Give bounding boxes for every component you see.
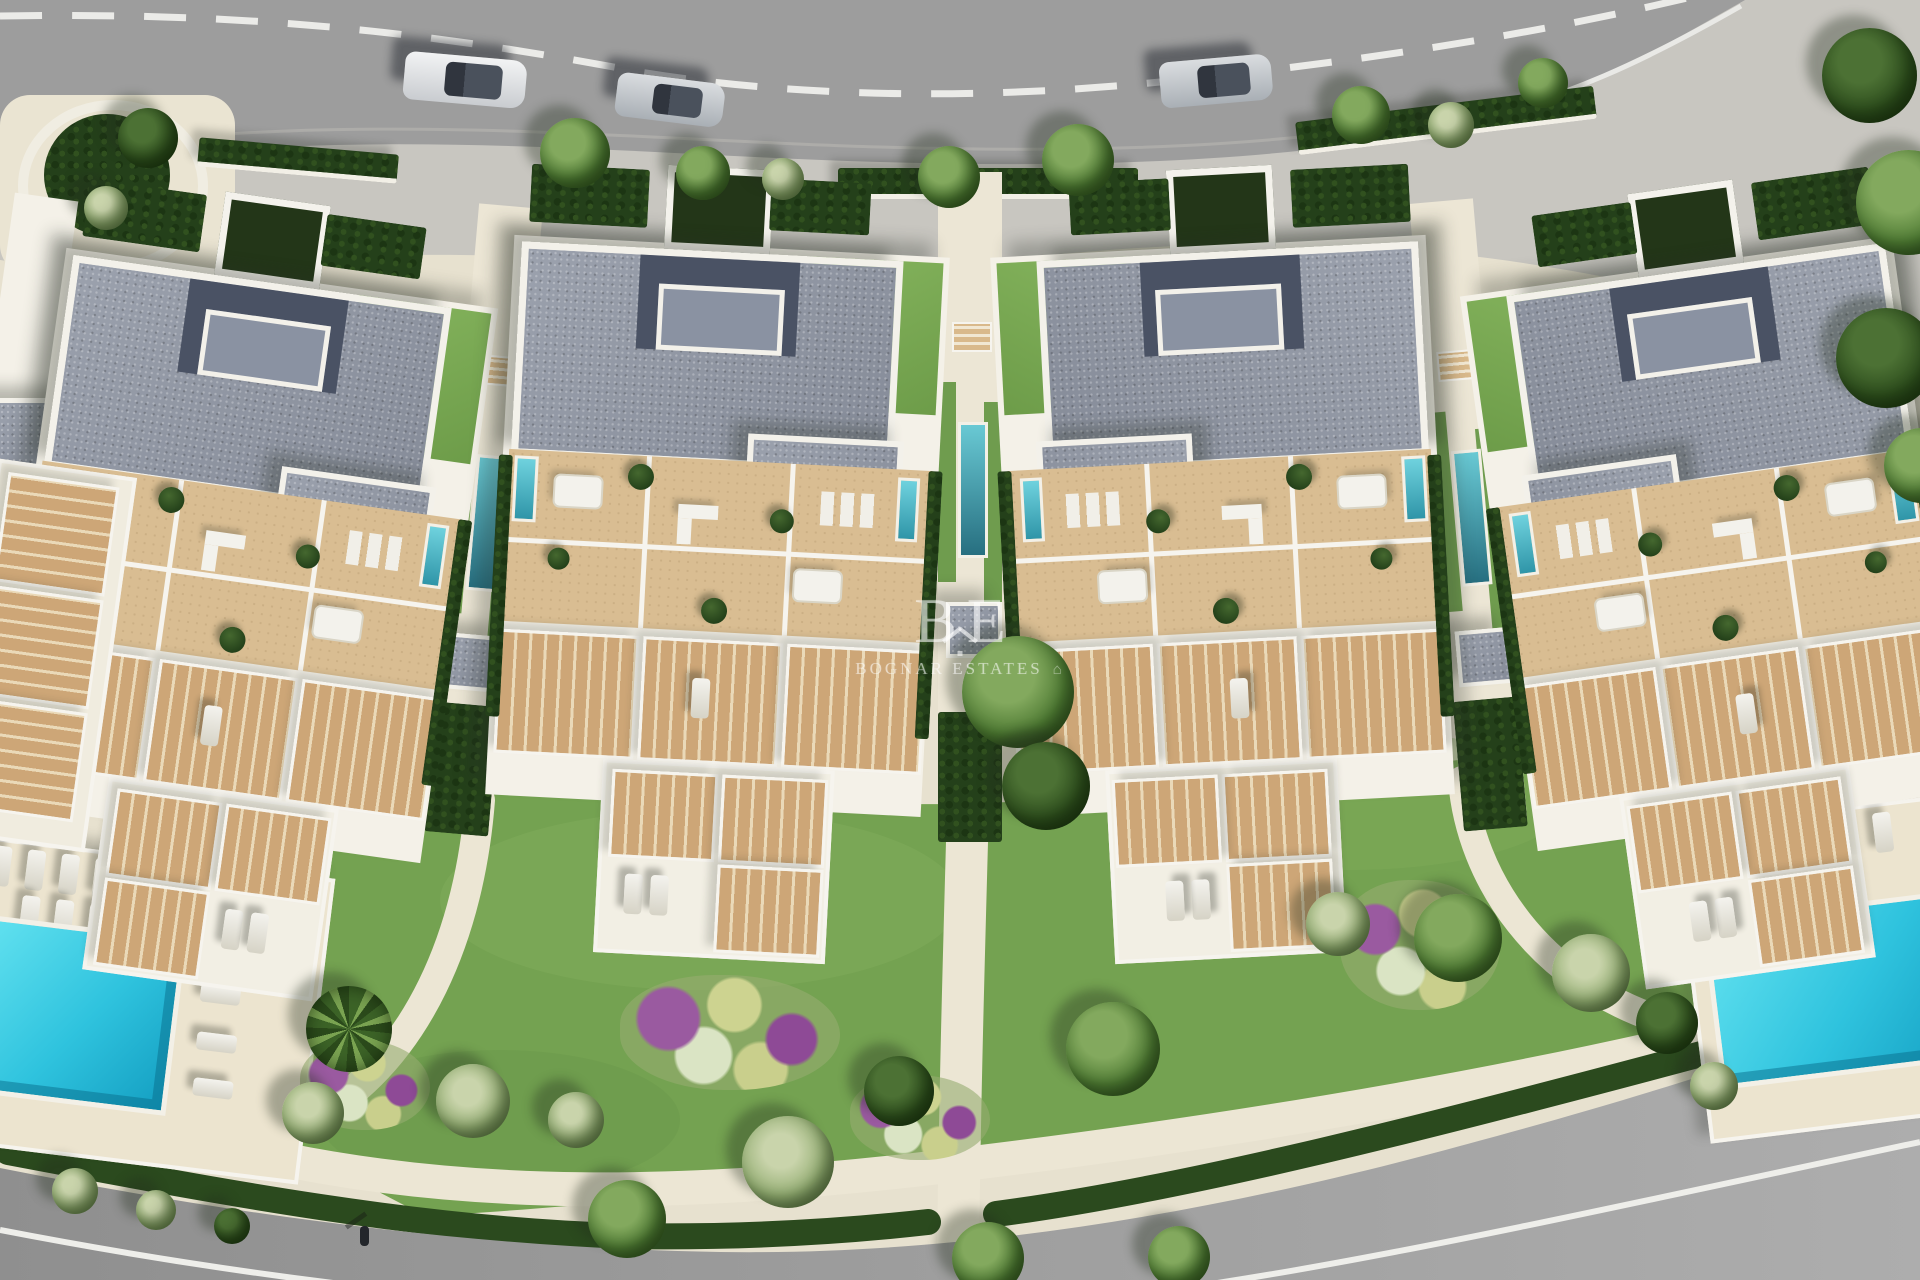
tree	[214, 1208, 250, 1244]
garden-path-central	[958, 806, 968, 1252]
tree	[540, 118, 610, 188]
sun-lounger	[246, 912, 269, 954]
tree	[1428, 102, 1474, 148]
watermark: BE BOGNAR ESTATES⌂	[0, 592, 1920, 679]
tree	[548, 1092, 604, 1148]
deck-panel	[0, 472, 120, 597]
tree	[1822, 28, 1917, 123]
tree	[1690, 1062, 1738, 1110]
tree	[1066, 1002, 1160, 1096]
deck-panel	[214, 804, 331, 906]
sun-lounger	[1191, 879, 1211, 920]
apartment-building-2	[484, 157, 956, 799]
front-pergola	[1166, 165, 1276, 254]
tree	[118, 108, 178, 168]
plunge-pool	[511, 455, 538, 522]
plunge-pool	[1020, 477, 1045, 542]
apartment-building-4	[1447, 158, 1920, 833]
deck-panel	[93, 877, 210, 979]
house-roof-icon	[943, 625, 977, 645]
lower-deck-wing	[82, 777, 339, 1001]
deck-panel	[1222, 769, 1332, 862]
sun-lounger	[1714, 897, 1737, 939]
lower-deck-wing	[1619, 765, 1876, 989]
deck-panel	[1517, 667, 1673, 809]
roof-atrium	[1140, 255, 1305, 357]
dining-set	[1826, 479, 1876, 515]
tree	[676, 146, 730, 200]
dining-set	[554, 475, 602, 507]
tree	[136, 1190, 176, 1230]
roof-atrium	[177, 278, 349, 393]
tree	[1636, 992, 1698, 1054]
deck-panel	[608, 769, 718, 862]
front-hedge	[320, 214, 426, 279]
car-silver	[1158, 53, 1274, 109]
lounge-sofa	[1221, 504, 1262, 520]
lounger-row	[820, 491, 878, 528]
pedestrian	[360, 1226, 369, 1246]
building-body	[1447, 158, 1920, 833]
tree	[588, 1180, 666, 1258]
tree	[742, 1116, 834, 1208]
deck-panel	[0, 698, 88, 823]
lower-deck-wing	[593, 758, 835, 964]
deck-panel	[713, 864, 823, 957]
sun-lounger	[690, 678, 710, 719]
tree	[1306, 892, 1370, 956]
lounge-sofa	[678, 504, 719, 520]
building-body	[0, 170, 511, 845]
front-pergola	[1627, 180, 1744, 278]
brand-monogram: BE	[914, 592, 1006, 651]
front-pergola	[214, 192, 331, 290]
walkway-stairs	[952, 322, 992, 352]
sun-lounger	[1230, 678, 1250, 719]
tree	[52, 1168, 98, 1214]
apartment-building-1	[0, 170, 511, 845]
brand-name: BOGNAR ESTATES⌂	[0, 659, 1920, 679]
monogram-letter-e: E	[967, 585, 1006, 656]
sun-lounger	[220, 909, 243, 951]
house-icon: ⌂	[1053, 662, 1065, 678]
sun-lounger	[623, 874, 643, 915]
skylight	[1627, 297, 1761, 380]
deck-panel	[285, 679, 441, 821]
deck-panel	[1626, 792, 1743, 894]
tree	[1042, 124, 1114, 196]
aerial-render-scene: BE BOGNAR ESTATES⌂	[0, 0, 1920, 1280]
dining-set	[1338, 475, 1386, 507]
car-windshield	[651, 83, 704, 119]
sun-lounger	[1735, 693, 1758, 735]
tree	[1002, 742, 1090, 830]
flower-bed	[620, 975, 840, 1090]
skylight	[1155, 284, 1284, 357]
car-windshield	[1197, 62, 1251, 98]
brand-name-text: BOGNAR ESTATES	[855, 659, 1043, 678]
roof-atrium	[636, 255, 801, 357]
tree	[918, 146, 980, 208]
skylight	[197, 309, 331, 392]
tree	[864, 1056, 934, 1126]
deck-panel	[1748, 865, 1865, 967]
tree	[1552, 934, 1630, 1012]
tree	[1148, 1226, 1210, 1280]
tree	[282, 1082, 344, 1144]
plunge-pool	[1401, 455, 1428, 522]
lounger-row	[1063, 491, 1121, 528]
tree	[762, 158, 804, 200]
roof-chimney-dot	[958, 651, 963, 656]
tree	[1518, 58, 1568, 108]
deck-panel	[1112, 775, 1222, 868]
tree	[1414, 894, 1502, 982]
tree	[84, 186, 128, 230]
front-hedge	[1290, 164, 1411, 228]
sun-lounger	[1165, 880, 1185, 921]
tree	[1332, 86, 1390, 144]
deck-panel	[1735, 776, 1852, 878]
sun-lounger	[1688, 900, 1711, 942]
palm-tree	[306, 986, 392, 1072]
sun-lounger	[200, 705, 223, 747]
building-body	[484, 157, 956, 799]
roof-atrium	[1609, 266, 1781, 381]
deck-panel	[143, 659, 299, 801]
walkway-lap-pool	[958, 422, 988, 558]
plunge-pool	[895, 477, 920, 542]
deck-panel	[105, 788, 222, 890]
car-windshield	[444, 61, 503, 100]
tree	[436, 1064, 510, 1138]
skylight	[656, 284, 785, 357]
front-hedge	[1531, 202, 1637, 267]
deck-panel	[718, 775, 828, 868]
monogram-letter-b: B	[914, 585, 957, 656]
sun-lounger	[649, 875, 669, 916]
